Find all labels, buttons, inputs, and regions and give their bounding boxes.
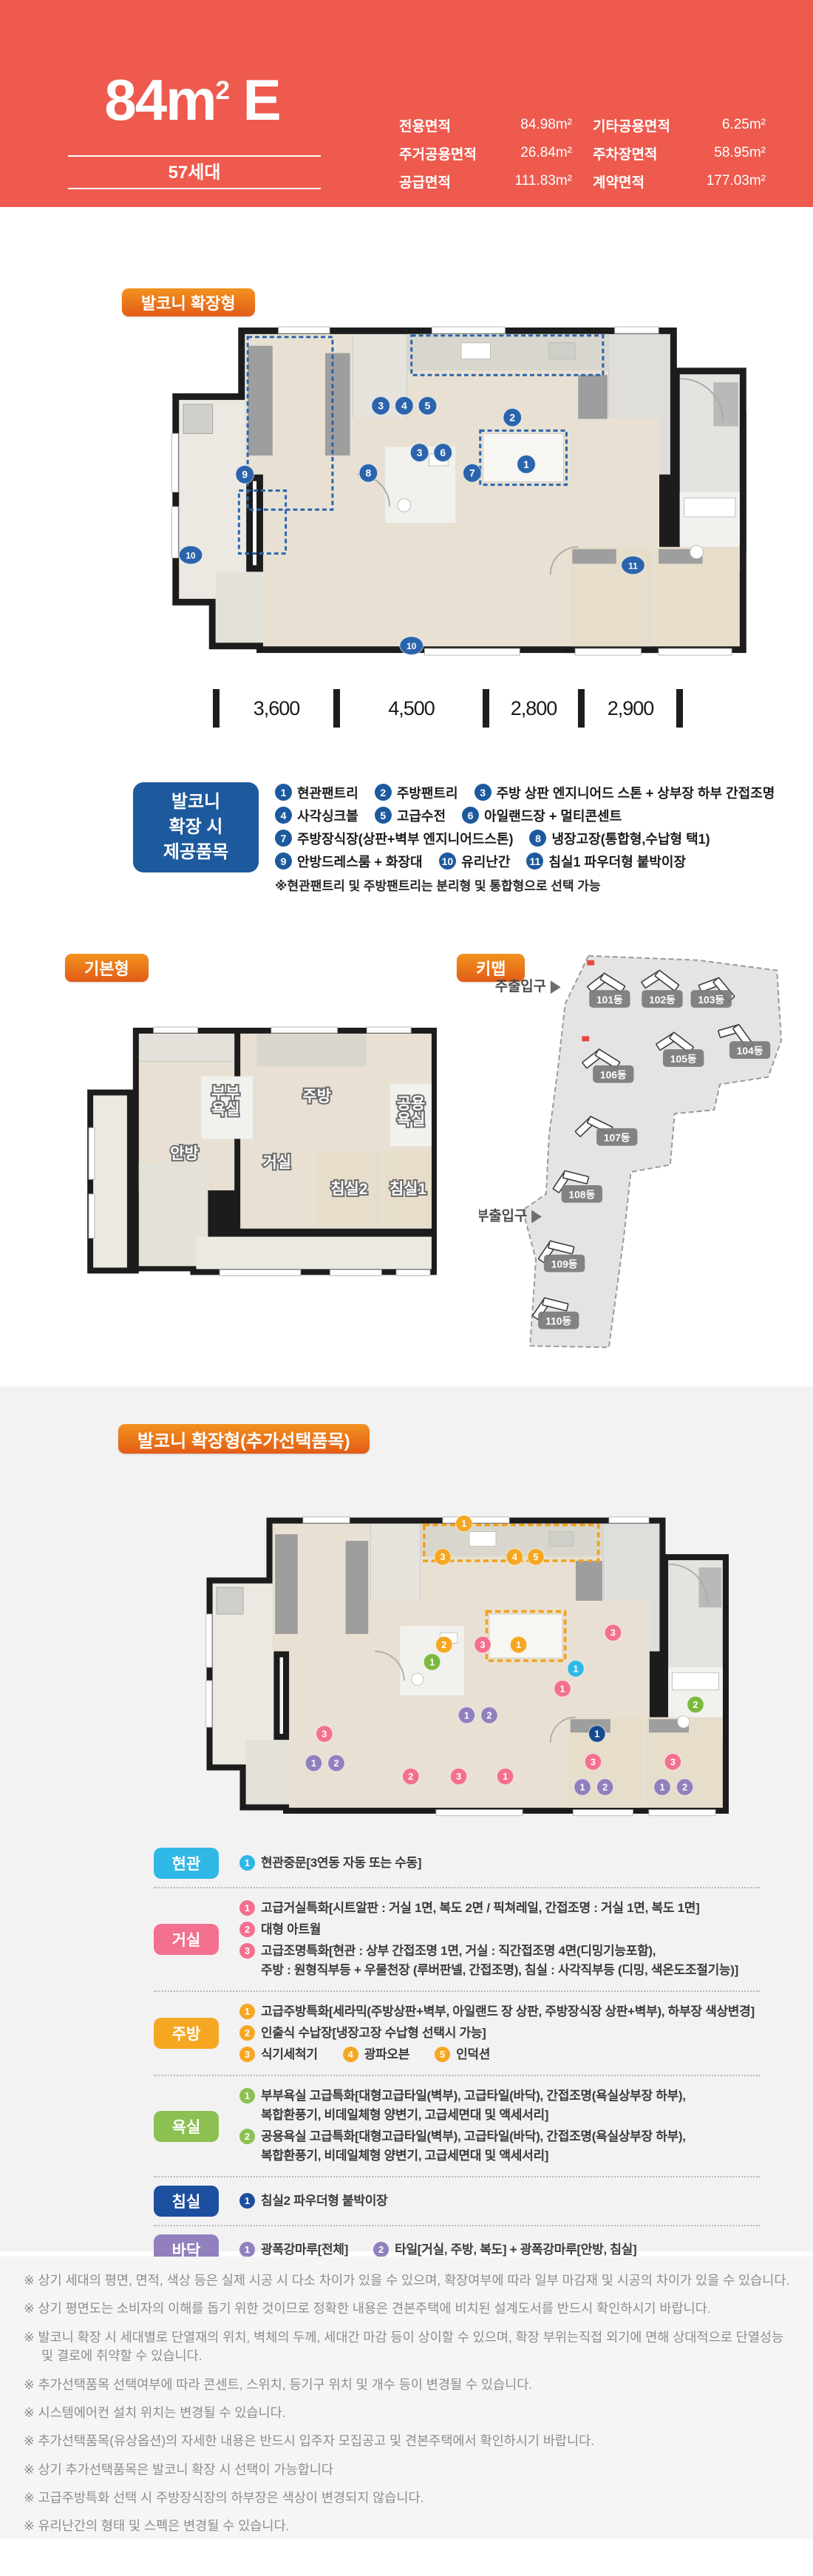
svg-text:1: 1: [659, 1783, 664, 1793]
area-table: 전용면적84.98m²기타공용면적6.25m²주거공용면적26.84m²주차장면…: [399, 111, 783, 195]
legend-item-number: 1: [239, 1855, 255, 1871]
svg-text:3: 3: [670, 1757, 676, 1767]
legend-rows: 1고급거실특화[시트알판 : 거실 1면, 복도 2면 / 픽쳐레일, 간접조명…: [239, 1897, 760, 1982]
provided-row: 9안방드레스룸 + 화장대10유리난간11침실1 파우더형 붙박이장: [275, 850, 778, 872]
legend-item-number: 1: [239, 2004, 255, 2019]
legend-item: 5인덕션: [435, 2045, 490, 2064]
divider: [68, 155, 321, 157]
floorplan-optional: 134523113121123122311312312: [203, 1514, 735, 1820]
dimension-value: 2,800: [489, 697, 578, 720]
plan-badge-9: 9: [236, 465, 254, 484]
dimension-value: 4,500: [340, 697, 483, 720]
item-text: 안방드레스룸 + 화장대: [297, 852, 423, 871]
legend-group-현관: 현관1현관중문[3연동 자동 또는 수동]: [154, 1843, 760, 1884]
legend-group-주방: 주방1고급주방특화[세라믹(주방상판+벽부, 아일랜드 장 상판, 주방장식장 …: [154, 1995, 760, 2072]
plan-badge-1: 1: [517, 455, 536, 474]
provided-item: 10유리난간: [439, 852, 511, 871]
legend-item: 1침실2 파우더형 붙박이장: [239, 2192, 387, 2211]
plan-badge-5: 5: [418, 396, 437, 415]
area-value: 26.84m²: [489, 145, 572, 161]
svg-text:3: 3: [417, 447, 423, 458]
plan-badge-2: 2: [596, 1779, 613, 1796]
provided-row: 7주방장식장(상판+벽부 엔지니어드스톤)8냉장고장(통합형,수납형 택1): [275, 827, 778, 850]
legend-separator: [154, 1887, 760, 1888]
plan-badge-4: 4: [395, 396, 413, 415]
legend-category-label: 거실: [154, 1924, 219, 1955]
svg-text:11: 11: [628, 560, 638, 571]
legend-item-number: 1: [239, 1900, 255, 1916]
floorplan-basic: 부부욕실주방안방거실침실2침실1공용욕실: [87, 1025, 440, 1334]
svg-text:1: 1: [503, 1772, 508, 1782]
building-label: 101동: [596, 994, 623, 1006]
item-text: 유리난간: [461, 852, 510, 871]
legend-group-침실: 침실1침실2 파우더형 붙박이장: [154, 2180, 760, 2222]
dimension-value: 3,600: [220, 697, 333, 720]
legend-item-number: 2: [239, 2025, 255, 2041]
legend-separator: [154, 2176, 760, 2177]
legend-row: 1현관중문[3연동 자동 또는 수동]: [239, 1854, 760, 1873]
building-label: 105동: [670, 1053, 697, 1065]
footnote: ※ 유리난간의 형태 및 스펙은 변경될 수 있습니다.: [24, 2517, 796, 2535]
plan-badge-3: 3: [410, 444, 429, 462]
area-row: 공급면적111.83m²계약면적177.03m²: [399, 167, 783, 195]
area-value: 6.25m²: [683, 117, 766, 133]
legend-rows: 1부부욕실 고급특화[대형고급타일(벽부), 고급타일(바닥), 간접조명(욕실…: [239, 2084, 760, 2168]
svg-text:부출입구: 부출입구: [479, 1207, 527, 1223]
area-label: 주차장면적: [593, 143, 683, 163]
item-text: 주방장식장(상판+벽부 엔지니어드스톤): [297, 829, 513, 848]
svg-text:6: 6: [440, 447, 446, 458]
legend-group-욕실: 욕실1부부욕실 고급특화[대형고급타일(벽부), 고급타일(바닥), 간접조명(…: [154, 2079, 760, 2173]
page-title: 84m2 E: [44, 71, 340, 129]
building-label: 110동: [545, 1315, 571, 1327]
plan-badge-1: 1: [589, 1726, 606, 1743]
legend-item-text: 인출식 수납장[냉장고장 수납형 선택시 가능]: [261, 2024, 486, 2043]
item-text: 아일랜드장 + 멀티콘센트: [484, 806, 622, 825]
legend-row: 2공용욕실 고급특화[대형고급타일(벽부), 고급타일(바닥), 간접조명(욕실…: [239, 2127, 760, 2166]
keymap: 101동102동103동104동105동106동107동108동109동110동…: [479, 951, 786, 1353]
brochure-page: 84m2 E 57세대 전용면적84.98m²기타공용면적6.25m²주거공용면…: [0, 0, 813, 2576]
provided-item: 5고급수전: [375, 806, 446, 825]
legend-item-text: 광파오븐: [364, 2045, 409, 2064]
item-text: 주방팬트리: [397, 783, 458, 802]
provided-items-title: 발코니 확장 시 제공품목: [133, 782, 259, 872]
footnote: ※ 상기 세대의 평면, 면적, 색상 등은 실제 시공 시 다소 차이가 있을…: [24, 2271, 796, 2290]
provided-item: 7주방장식장(상판+벽부 엔지니어드스톤): [275, 829, 513, 848]
plan-badge-3: 3: [664, 1754, 681, 1771]
item-number-badge: 2: [375, 784, 392, 801]
legend-row: 1부부욕실 고급특화[대형고급타일(벽부), 고급타일(바닥), 간접조명(욕실…: [239, 2087, 760, 2125]
area-value: 84.98m²: [489, 117, 572, 133]
item-number-badge: 7: [275, 830, 292, 847]
dimension-value: 2,900: [585, 697, 676, 720]
item-number-badge: 9: [275, 853, 292, 870]
svg-text:1: 1: [311, 1758, 316, 1769]
legend-rows: 1침실2 파우더형 붙박이장: [239, 2189, 760, 2213]
svg-text:1: 1: [464, 1710, 469, 1721]
building-label: 103동: [698, 994, 724, 1006]
dimension-tick: [676, 689, 683, 728]
svg-text:2: 2: [486, 1710, 491, 1721]
svg-text:2: 2: [333, 1758, 339, 1769]
building-label: 104동: [737, 1045, 763, 1057]
area-value: 58.95m²: [683, 145, 766, 161]
item-text: 사각싱크볼: [297, 806, 358, 825]
item-number-badge: 4: [275, 807, 292, 824]
plan-badge-2: 2: [403, 1768, 420, 1785]
provided-item: 6아일랜드장 + 멀티콘센트: [462, 806, 622, 825]
legend-item: 1현관중문[3연동 자동 또는 수동]: [239, 1854, 421, 1873]
legend-item-number: 3: [239, 2047, 255, 2062]
option-legend: 현관1현관중문[3연동 자동 또는 수동]거실1고급거실특화[시트알판 : 거실…: [154, 1843, 760, 2271]
legend-item-text: 침실2 파우더형 붙박이장: [261, 2192, 387, 2211]
plan-badge-1: 1: [305, 1755, 322, 1772]
item-number-badge: 5: [375, 807, 392, 824]
provided-note: ※현관팬트리 및 주방팬트리는 분리형 및 통합형으로 선택 가능: [275, 875, 778, 894]
legend-separator: [154, 1990, 760, 1992]
provided-items: 1현관팬트리2주방팬트리3주방 상판 엔지니어드 스톤 + 상부장 하부 간접조…: [275, 781, 778, 894]
svg-text:4: 4: [401, 400, 407, 412]
legend-item: 1고급거실특화[시트알판 : 거실 1면, 복도 2면 / 픽쳐레일, 간접조명…: [239, 1899, 699, 1918]
provided-title-line: 발코니: [133, 790, 259, 815]
footnote: ※ 추가선택품목(유상옵션)의 자세한 내용은 반드시 입주자 모집공고 및 견…: [24, 2432, 796, 2450]
footnote: ※ 발코니 확장 시 세대별로 단열재의 위치, 벽체의 두께, 세대간 마감 …: [24, 2328, 796, 2366]
legend-row: 3식기세척기4광파오븐5인덕션: [239, 2045, 760, 2064]
svg-text:3: 3: [610, 1628, 616, 1638]
svg-text:3: 3: [322, 1729, 327, 1740]
svg-text:10: 10: [406, 641, 417, 651]
svg-text:4: 4: [512, 1552, 517, 1562]
plan-badge-3: 3: [435, 1548, 452, 1565]
highlighted-unit-marker: [582, 1036, 589, 1041]
legend-item: 1부부욕실 고급특화[대형고급타일(벽부), 고급타일(바닥), 간접조명(욕실…: [239, 2087, 686, 2125]
legend-item: 2인출식 수납장[냉장고장 수납형 선택시 가능]: [239, 2024, 486, 2043]
area-row: 전용면적84.98m²기타공용면적6.25m²: [399, 111, 783, 139]
legend-row: 2대형 아트월: [239, 1920, 760, 1939]
item-number-badge: 10: [439, 853, 457, 870]
plan-badge-1: 1: [568, 1661, 585, 1678]
provided-title-line: 확장 시: [133, 815, 259, 840]
svg-text:1: 1: [573, 1664, 578, 1674]
legend-category-label: 주방: [154, 2018, 219, 2049]
plan-badge-3: 3: [316, 1726, 333, 1743]
room-label: 침실2: [330, 1181, 367, 1198]
legend-category-label: 현관: [154, 1848, 219, 1879]
dimension-tick: [578, 689, 585, 728]
plan-badge-1: 1: [458, 1707, 475, 1724]
plan-badge-1: 1: [574, 1779, 591, 1796]
room-label: 침실1: [390, 1181, 426, 1198]
legend-item-number: 1: [239, 2242, 255, 2257]
legend-item-number: 1: [239, 2088, 255, 2104]
footnote: ※ 상기 평면도는 소비자의 이해를 돕기 위한 것이므로 정확한 내용은 견본…: [24, 2299, 796, 2318]
plan-badge-3: 3: [372, 396, 390, 415]
legend-item-text: 고급조명특화[현관 : 상부 간접조명 1면, 거실 : 직간접조명 4면(디밍…: [261, 1942, 738, 1980]
legend-item-text: 고급주방특화[세라믹(주방상판+벽부, 아일랜드 장 상판, 주방장식장 상판+…: [261, 2002, 755, 2021]
legend-item-text: 대형 아트월: [261, 1920, 321, 1939]
legend-item: 1고급주방특화[세라믹(주방상판+벽부, 아일랜드 장 상판, 주방장식장 상판…: [239, 2002, 755, 2021]
legend-item: 2대형 아트월: [239, 1920, 321, 1939]
legend-item-text: 공용욕실 고급특화[대형고급타일(벽부), 고급타일(바닥), 간접조명(욕실상…: [261, 2127, 686, 2166]
legend-item-number: 2: [239, 2129, 255, 2144]
provided-row: 1현관팬트리2주방팬트리3주방 상판 엔지니어드 스톤 + 상부장 하부 간접조…: [275, 781, 778, 804]
svg-text:1: 1: [523, 458, 529, 470]
svg-text:2: 2: [693, 1700, 698, 1710]
svg-text:1: 1: [594, 1729, 599, 1740]
plan-badge-1: 1: [423, 1654, 440, 1671]
plan-badge-11: 11: [622, 556, 645, 574]
svg-text:5: 5: [425, 400, 431, 412]
item-number-badge: 1: [275, 784, 292, 801]
legend-item: 3식기세척기: [239, 2045, 318, 2064]
svg-text:3: 3: [378, 400, 384, 412]
plan-badge-6: 6: [434, 444, 452, 462]
svg-text:1: 1: [461, 1519, 466, 1529]
dimension-tick: [333, 689, 340, 728]
footnotes: ※ 상기 세대의 평면, 면적, 색상 등은 실제 시공 시 다소 차이가 있을…: [24, 2271, 796, 2546]
item-text: 주방 상판 엔지니어드 스톤 + 상부장 하부 간접조명: [497, 783, 775, 802]
plan-badge-2: 2: [481, 1707, 498, 1724]
svg-text:9: 9: [242, 469, 248, 481]
area-value: 177.03m²: [683, 173, 766, 189]
plan-badge-3: 3: [585, 1754, 602, 1771]
footnote: ※ 추가선택품목 선택여부에 따라 콘센트, 스위치, 등기구 위치 및 개수 …: [24, 2376, 796, 2394]
svg-text:2: 2: [441, 1640, 446, 1650]
area-label: 기타공용면적: [593, 115, 683, 135]
legend-category-label: 욕실: [154, 2111, 219, 2142]
legend-item-text: 부부욕실 고급특화[대형고급타일(벽부), 고급타일(바닥), 간접조명(욕실상…: [261, 2087, 686, 2125]
dimension-tick: [483, 689, 489, 728]
plan-badge-10: 10: [179, 546, 203, 564]
area-value: 111.83m²: [489, 173, 572, 189]
household-count: 57세대: [68, 160, 321, 186]
plan-badge-3: 3: [605, 1624, 622, 1641]
legend-item: 3고급조명특화[현관 : 상부 간접조명 1면, 거실 : 직간접조명 4면(디…: [239, 1942, 738, 1980]
provided-item: 2주방팬트리: [375, 783, 458, 802]
svg-text:7: 7: [469, 467, 475, 479]
legend-category-label: 침실: [154, 2186, 219, 2217]
plan-badge-3: 3: [450, 1768, 467, 1785]
svg-text:주출입구: 주출입구: [495, 978, 546, 994]
legend-item-number: 3: [239, 1943, 255, 1959]
legend-item: 2공용욕실 고급특화[대형고급타일(벽부), 고급타일(바닥), 간접조명(욕실…: [239, 2127, 686, 2166]
floorplan-expanded: 3452361789101011: [169, 324, 754, 660]
legend-row: 1침실2 파우더형 붙박이장: [239, 2192, 760, 2211]
plan-badge-10: 10: [400, 637, 423, 655]
provided-title-line: 제공품목: [133, 840, 259, 865]
legend-item-text: 인덕션: [456, 2045, 490, 2064]
legend-item-number: 5: [435, 2047, 450, 2062]
plan-badge-2: 2: [436, 1636, 453, 1653]
provided-item: 3주방 상판 엔지니어드 스톤 + 상부장 하부 간접조명: [474, 783, 775, 802]
building-label: 106동: [600, 1069, 627, 1081]
svg-text:5: 5: [533, 1552, 538, 1562]
provided-item: 1현관팬트리: [275, 783, 358, 802]
label-expanded-optional: 발코니 확장형(추가선택품목): [118, 1424, 370, 1454]
label-expanded-type: 발코니 확장형: [122, 288, 255, 316]
dimension-tick: [213, 689, 220, 728]
svg-text:1: 1: [516, 1640, 521, 1650]
legend-rows: 1현관중문[3연동 자동 또는 수동]: [239, 1851, 760, 1875]
legend-item-number: 2: [239, 1922, 255, 1937]
plan-badge-2: 2: [328, 1755, 345, 1772]
building-label: 102동: [649, 994, 676, 1006]
svg-text:1: 1: [559, 1684, 565, 1694]
legend-separator: [154, 2225, 760, 2226]
room-label: 안방: [170, 1145, 198, 1162]
legend-row: 1고급거실특화[시트알판 : 거실 1면, 복도 2면 / 픽쳐레일, 간접조명…: [239, 1899, 760, 1918]
building-label: 108동: [568, 1189, 595, 1201]
legend-row: 3고급조명특화[현관 : 상부 간접조명 1면, 거실 : 직간접조명 4면(디…: [239, 1942, 760, 1980]
provided-item: 9안방드레스룸 + 화장대: [275, 852, 423, 871]
plan-badge-1: 1: [510, 1636, 527, 1653]
plan-badge-2: 2: [687, 1696, 704, 1713]
item-number-badge: 11: [526, 853, 543, 870]
svg-text:2: 2: [509, 412, 515, 424]
provided-item: 8냉장고장(통합형,수납형 택1): [529, 829, 710, 848]
svg-text:10: 10: [186, 551, 196, 561]
legend-row: 2인출식 수납장[냉장고장 수납형 선택시 가능]: [239, 2024, 760, 2043]
highlighted-unit-marker: [587, 960, 594, 966]
room-label: 거실: [263, 1154, 291, 1171]
footnote: ※ 고급주방특화 선택 시 주방장식장의 하부장은 색상이 변경되지 않습니다.: [24, 2489, 796, 2507]
legend-item-text: 현관중문[3연동 자동 또는 수동]: [261, 1854, 421, 1873]
plan-badge-7: 7: [463, 464, 481, 482]
item-text: 고급수전: [397, 806, 446, 825]
label-basic-type: 기본형: [65, 954, 149, 982]
building-label: 109동: [551, 1258, 578, 1270]
area-label: 전용면적: [399, 115, 489, 135]
area-label: 주거공용면적: [399, 143, 489, 163]
plan-badge-8: 8: [359, 464, 378, 482]
svg-text:1: 1: [429, 1657, 435, 1667]
legend-group-거실: 거실1고급거실특화[시트알판 : 거실 1면, 복도 2면 / 픽쳐레일, 간접…: [154, 1891, 760, 1987]
provided-item: 11침실1 파우더형 붙박이장: [526, 852, 686, 871]
room-label: 주방: [302, 1088, 330, 1105]
svg-text:2: 2: [408, 1772, 413, 1782]
plan-badge-2: 2: [503, 408, 522, 427]
plan-badge-1: 1: [497, 1768, 514, 1785]
legend-item-text: 고급거실특화[시트알판 : 거실 1면, 복도 2면 / 픽쳐레일, 간접조명 …: [261, 1899, 699, 1918]
room-label: 공용욕실: [397, 1095, 425, 1128]
legend-rows: 1고급주방특화[세라믹(주방상판+벽부, 아일랜드 장 상판, 주방장식장 상판…: [239, 2000, 760, 2067]
legend-item-number: 4: [343, 2047, 358, 2062]
plan-badge-1: 1: [554, 1681, 571, 1698]
plan-badge-1: 1: [654, 1779, 671, 1796]
item-number-badge: 6: [462, 807, 479, 824]
item-text: 현관팬트리: [297, 783, 358, 802]
footnote: ※ 시스템에어컨 설치 위치는 변경될 수 있습니다.: [24, 2404, 796, 2422]
svg-text:8: 8: [366, 467, 372, 479]
svg-text:2: 2: [682, 1783, 687, 1793]
legend-item-text: 식기세척기: [261, 2045, 318, 2064]
svg-text:3: 3: [480, 1640, 485, 1650]
room-label: 부부욕실: [211, 1085, 239, 1119]
plan-badge-1: 1: [456, 1515, 473, 1532]
legend-row: 1고급주방특화[세라믹(주방상판+벽부, 아일랜드 장 상판, 주방장식장 상판…: [239, 2002, 760, 2021]
item-number-badge: 8: [529, 830, 546, 847]
plan-badge-3: 3: [474, 1636, 491, 1653]
building-label: 107동: [604, 1132, 630, 1144]
legend-item-number: 2: [373, 2242, 389, 2257]
dimension-row: 3,6004,5002,8002,900: [213, 686, 683, 731]
svg-text:3: 3: [456, 1772, 461, 1782]
plan-badge-2: 2: [676, 1779, 693, 1796]
header: 84m2 E 57세대 전용면적84.98m²기타공용면적6.25m²주거공용면…: [0, 0, 813, 207]
legend-separator: [154, 2075, 760, 2076]
plan-badge-4: 4: [506, 1548, 523, 1565]
item-text: 침실1 파우더형 붙박이장: [548, 852, 686, 871]
legend-item: 4광파오븐: [343, 2045, 409, 2064]
legend-item-number: 1: [239, 2193, 255, 2209]
divider: [68, 188, 321, 189]
provided-row: 4사각싱크볼5고급수전6아일랜드장 + 멀티콘센트: [275, 804, 778, 827]
item-number-badge: 3: [474, 784, 491, 801]
entrance-arrow-icon: [551, 980, 561, 994]
svg-text:2: 2: [602, 1783, 608, 1793]
item-text: 냉장고장(통합형,수납형 택1): [551, 829, 710, 848]
area-label: 공급면적: [399, 172, 489, 191]
area-label: 계약면적: [593, 172, 683, 191]
provided-item: 4사각싱크볼: [275, 806, 358, 825]
svg-text:3: 3: [591, 1757, 596, 1767]
footnote: ※ 상기 추가선택품목은 발코니 확장 시 선택이 가능합니다: [24, 2461, 796, 2479]
plan-badge-5: 5: [528, 1548, 545, 1565]
svg-text:3: 3: [440, 1552, 445, 1562]
svg-text:1: 1: [579, 1783, 585, 1793]
area-row: 주거공용면적26.84m²주차장면적58.95m²: [399, 139, 783, 167]
entrance-label: 주출입구: [495, 978, 561, 994]
